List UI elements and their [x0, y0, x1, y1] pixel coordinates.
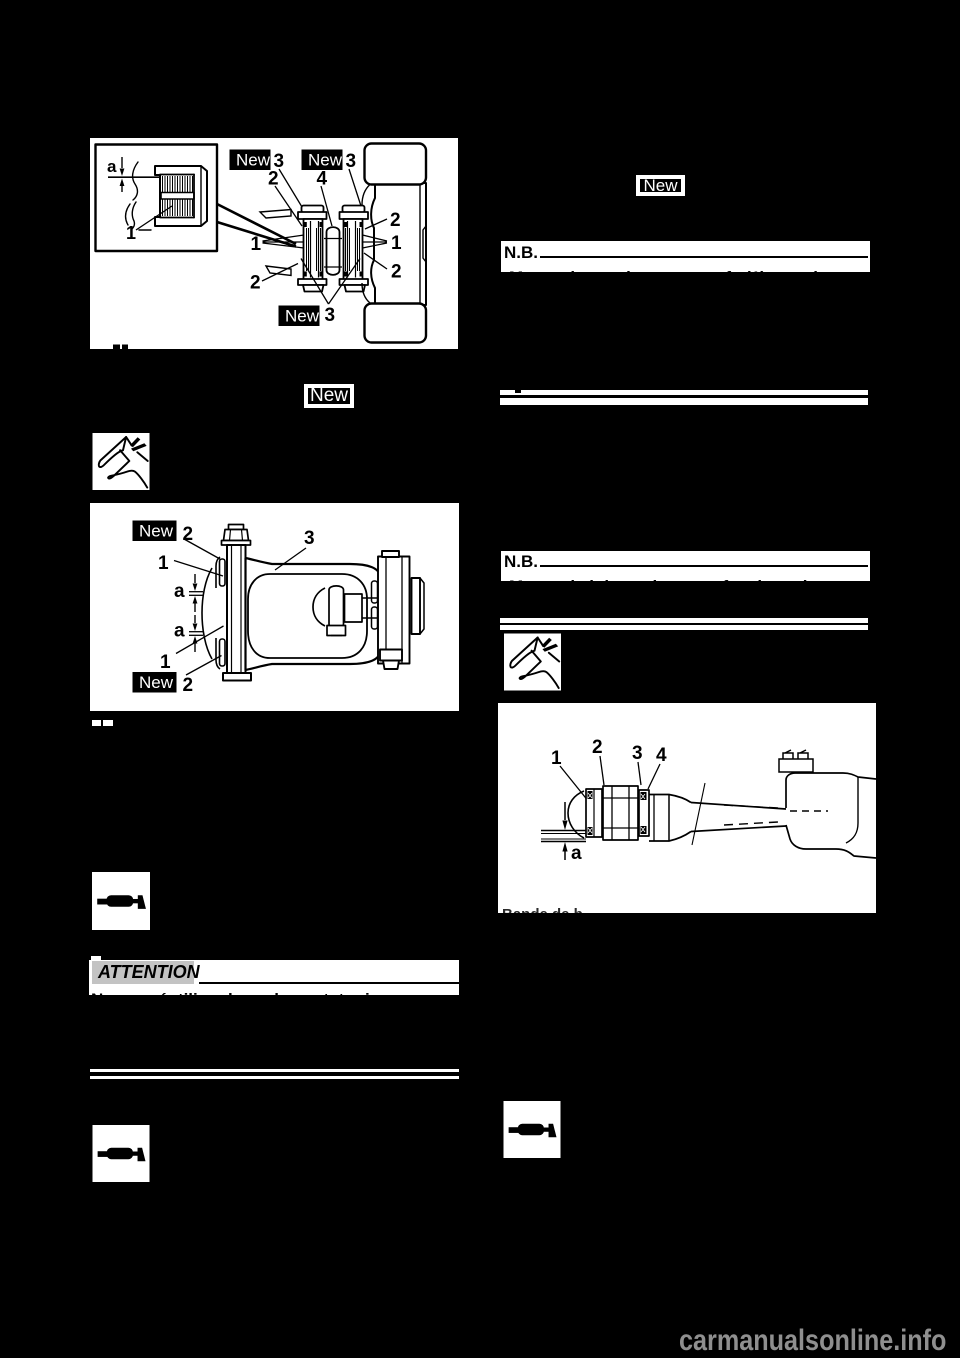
svg-text:2: 2 — [183, 675, 194, 696]
svg-text:2: 2 — [183, 524, 194, 545]
svg-text:4: 4 — [656, 745, 667, 766]
svg-text:2: 2 — [390, 210, 401, 231]
svg-text:3: 3 — [325, 305, 336, 326]
svg-text:Bande de b: Bande de b — [502, 906, 583, 913]
svg-text:4: 4 — [317, 169, 328, 190]
svg-text:1: 1 — [158, 553, 169, 574]
svg-text:3: 3 — [304, 528, 315, 549]
svg-text:2: 2 — [592, 737, 603, 758]
svg-text:a: a — [174, 581, 185, 602]
svg-text:1: 1 — [251, 234, 262, 255]
svg-text:a: a — [174, 621, 185, 642]
svg-text:a: a — [571, 843, 582, 864]
svg-text:3: 3 — [346, 151, 357, 172]
svg-text:New: New — [285, 307, 320, 326]
svg-text:New: New — [236, 151, 271, 170]
svg-text:2: 2 — [268, 169, 279, 190]
svg-text:1: 1 — [126, 223, 136, 243]
svg-text:1: 1 — [391, 233, 402, 254]
svg-text:a: a — [107, 157, 117, 176]
svg-text:3: 3 — [632, 743, 643, 764]
svg-text:1: 1 — [160, 652, 171, 673]
svg-text:New: New — [308, 151, 343, 170]
svg-text:2: 2 — [250, 273, 261, 294]
svg-text:2: 2 — [391, 262, 402, 283]
svg-text:New: New — [139, 522, 174, 541]
svg-text:New: New — [139, 673, 174, 692]
